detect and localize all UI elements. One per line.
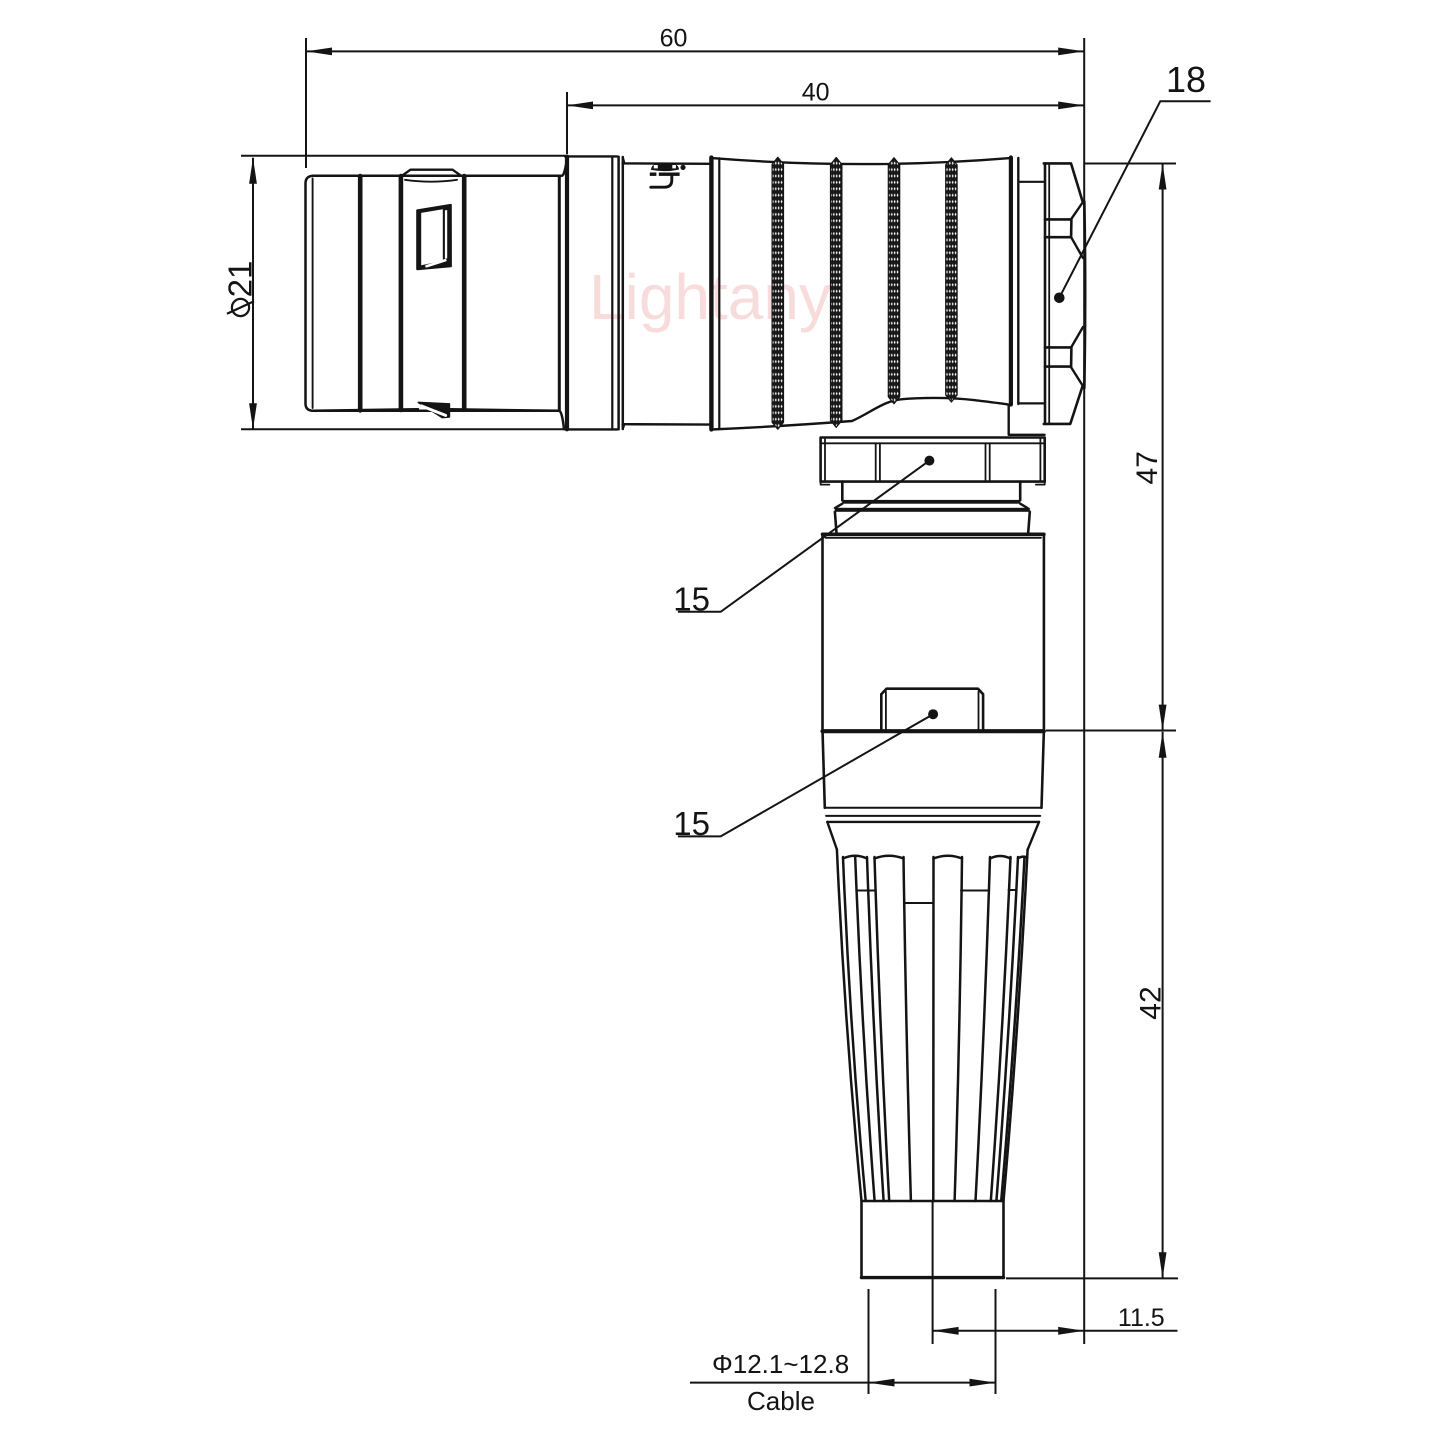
svg-text:18: 18 — [1166, 59, 1206, 100]
svg-text:21: 21 — [222, 261, 259, 298]
svg-text:11.5: 11.5 — [1118, 1304, 1165, 1332]
svg-text:42: 42 — [1135, 986, 1168, 1019]
svg-text:Cable: Cable — [747, 1386, 815, 1416]
svg-text:15: 15 — [673, 805, 710, 842]
svg-text:15: 15 — [673, 580, 710, 617]
svg-text:60: 60 — [660, 25, 688, 53]
svg-text:Φ12.1~12.8: Φ12.1~12.8 — [712, 1349, 849, 1379]
svg-text:47: 47 — [1131, 451, 1164, 484]
svg-text:40: 40 — [802, 79, 830, 107]
